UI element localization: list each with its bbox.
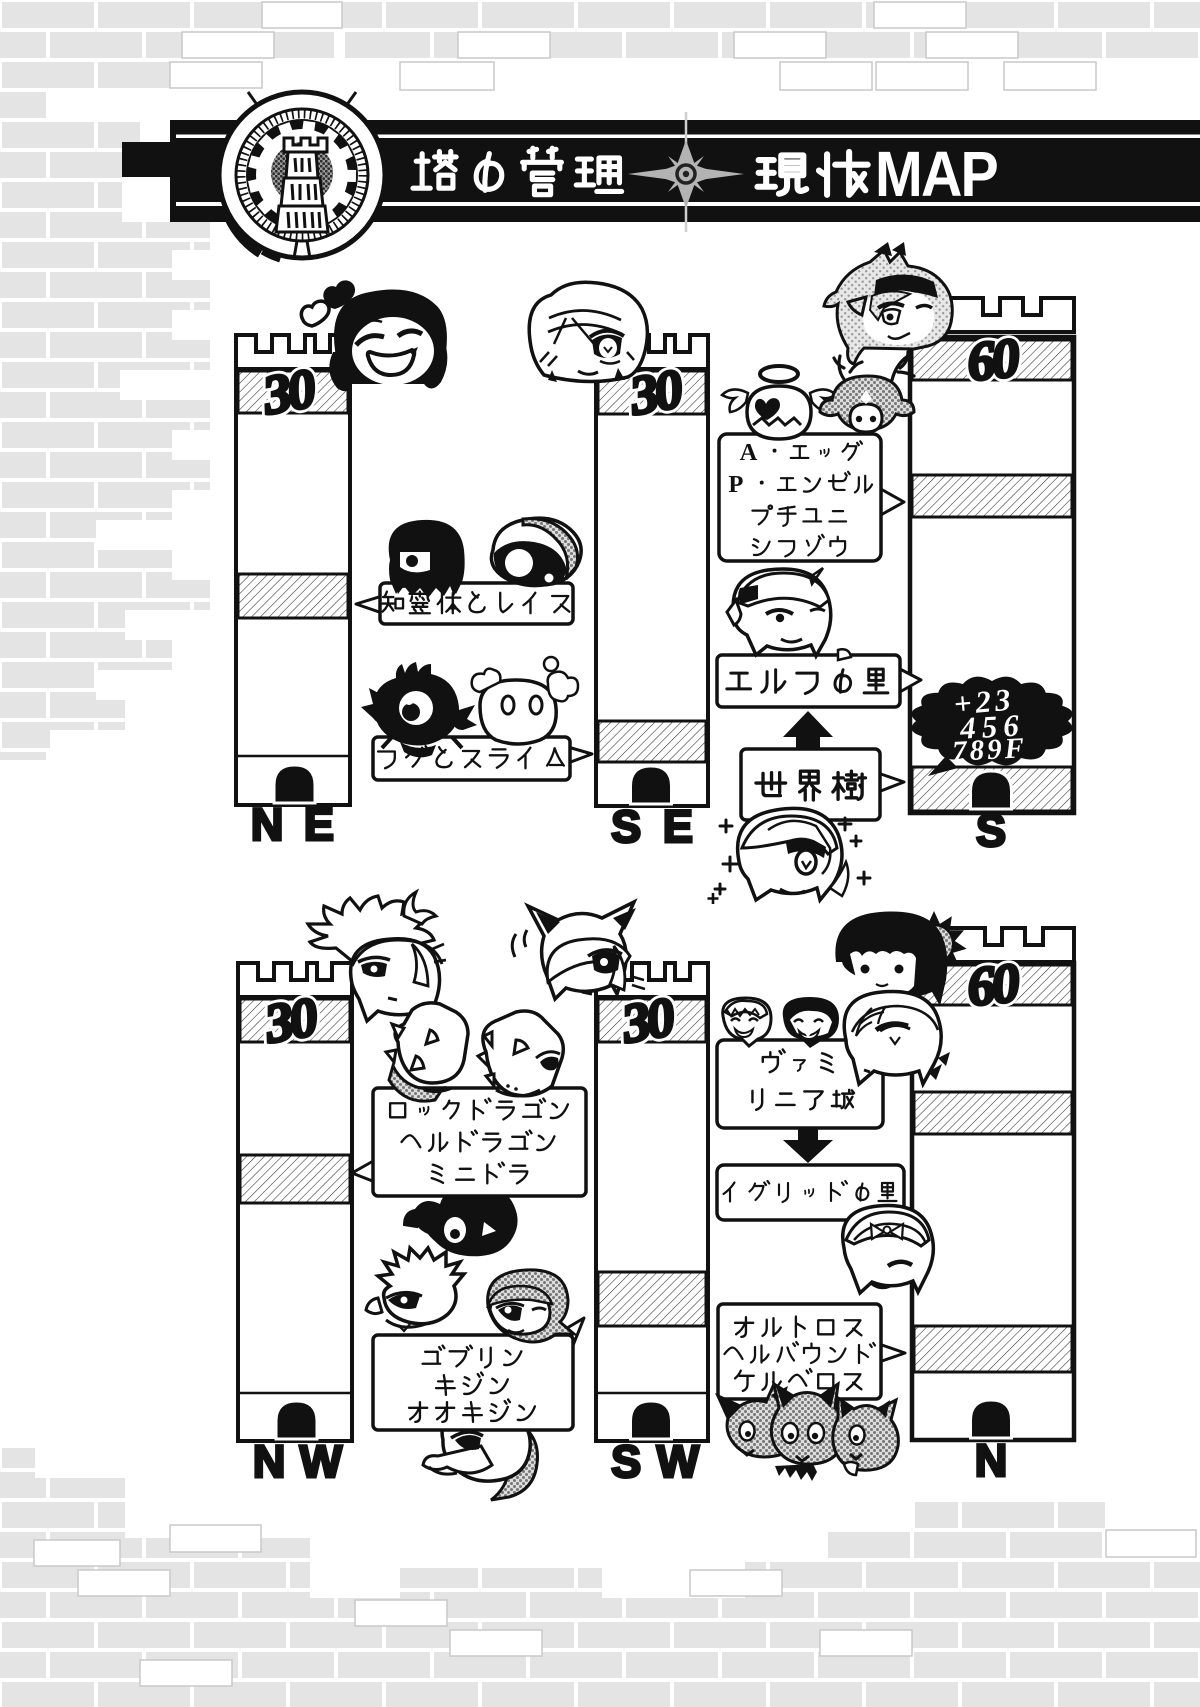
svg-text:E: E: [663, 801, 693, 852]
svg-text:P: P: [728, 471, 743, 498]
svg-text:60: 60: [964, 951, 1022, 1017]
svg-text:S: S: [611, 801, 641, 852]
svg-text:N: N: [975, 1435, 1008, 1486]
svg-text:S: S: [611, 1436, 641, 1487]
svg-text:A: A: [740, 439, 758, 466]
svg-text:60: 60: [964, 326, 1022, 392]
svg-text:789F: 789F: [951, 732, 1027, 768]
svg-text:N: N: [251, 799, 284, 850]
svg-text:E: E: [304, 799, 334, 850]
svg-text:W: W: [300, 1436, 343, 1487]
svg-text:MAP: MAP: [875, 138, 997, 210]
svg-text:W: W: [657, 1436, 700, 1487]
svg-text:N: N: [253, 1436, 286, 1487]
svg-text:S: S: [976, 805, 1006, 856]
